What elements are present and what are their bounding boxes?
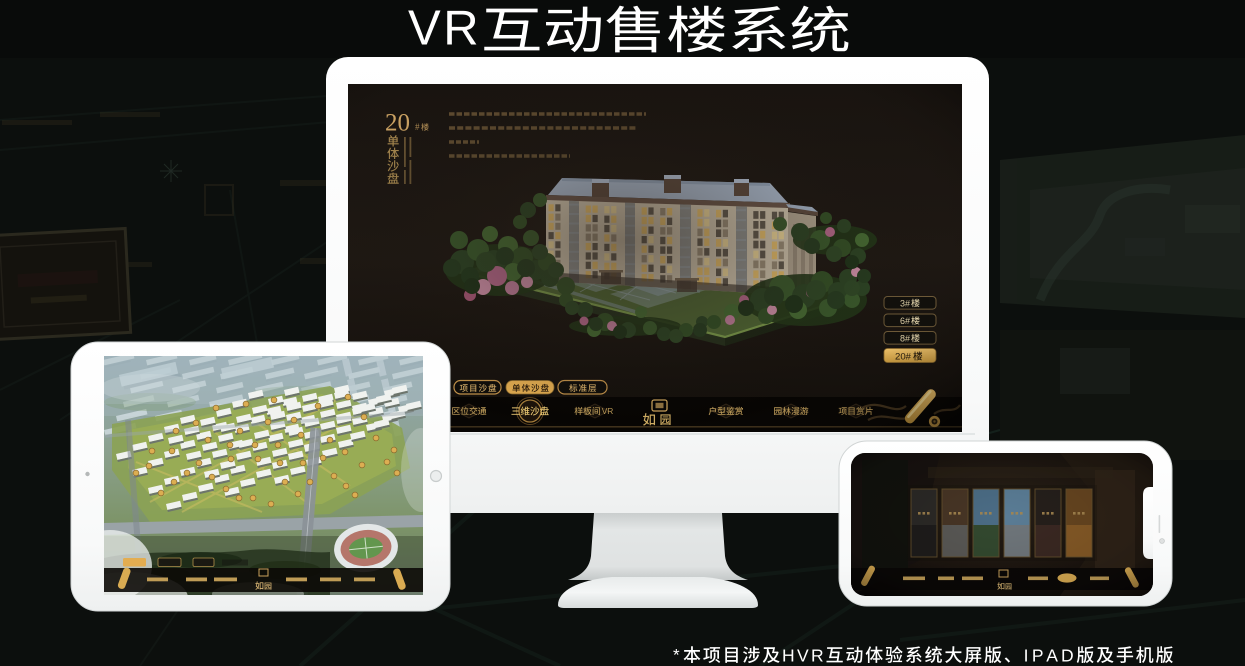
svg-text:H: H bbox=[782, 646, 795, 666]
svg-text:VR: VR bbox=[408, 2, 481, 56]
svg-text:I: I bbox=[1024, 646, 1029, 666]
svg-text:*: * bbox=[673, 646, 680, 665]
svg-text:R: R bbox=[811, 646, 824, 666]
svg-text:A: A bbox=[1046, 646, 1058, 666]
svg-text:D: D bbox=[1061, 646, 1074, 666]
svg-text:P: P bbox=[1032, 646, 1044, 666]
svg-text:V: V bbox=[797, 646, 809, 666]
